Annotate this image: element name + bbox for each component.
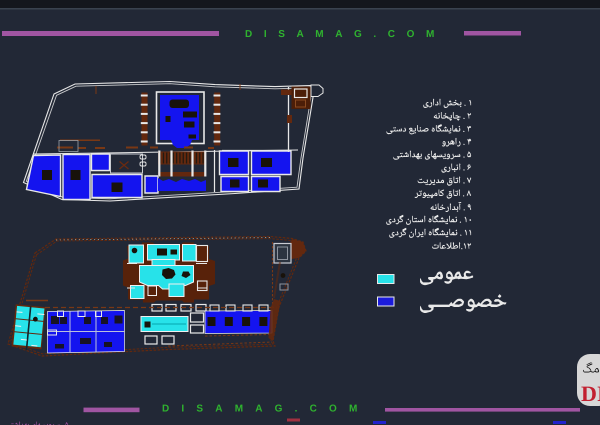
- svg-text:DISAMAG.COM: DISAMAG.COM: [162, 404, 370, 415]
- svg-text:DISAMAG.COM: DISAMAG.COM: [245, 29, 446, 40]
- svg-text:DIS: DIS: [581, 381, 600, 406]
